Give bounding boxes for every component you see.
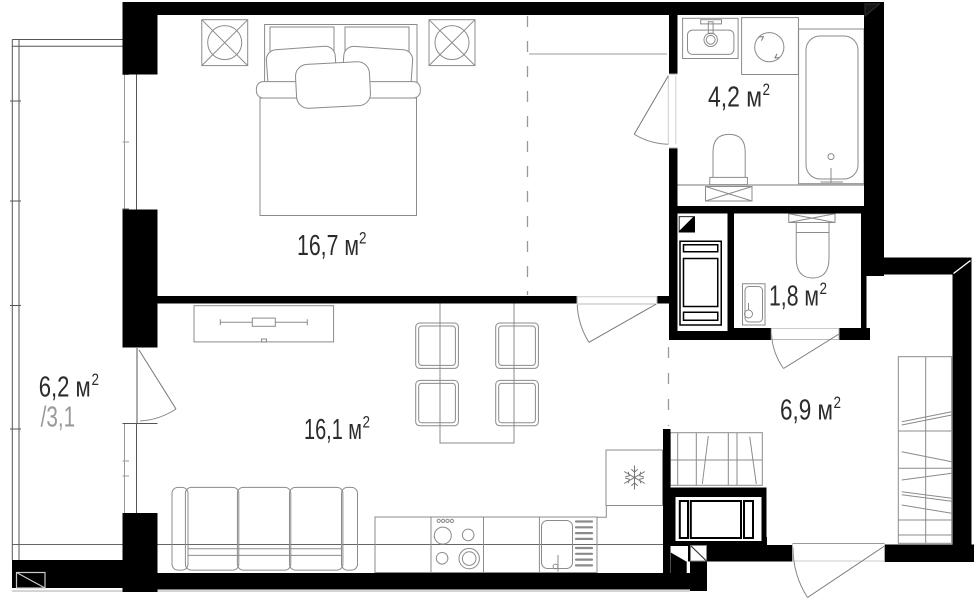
svg-text:2: 2 xyxy=(363,413,371,432)
svg-text:/3,1: /3,1 xyxy=(41,402,76,434)
svg-text:6,9 м: 6,9 м xyxy=(780,395,833,427)
svg-text:4,2 м: 4,2 м xyxy=(708,82,762,114)
svg-text:2: 2 xyxy=(820,279,828,298)
svg-text:2: 2 xyxy=(763,80,771,99)
svg-text:6,2 м: 6,2 м xyxy=(39,371,91,403)
svg-text:16,1 м: 16,1 м xyxy=(304,414,362,446)
svg-text:2: 2 xyxy=(92,370,100,389)
svg-text:1,8 м: 1,8 м xyxy=(769,281,819,313)
svg-text:2: 2 xyxy=(359,229,367,248)
svg-text:16,7 м: 16,7 м xyxy=(297,230,359,262)
svg-text:2: 2 xyxy=(834,393,842,412)
